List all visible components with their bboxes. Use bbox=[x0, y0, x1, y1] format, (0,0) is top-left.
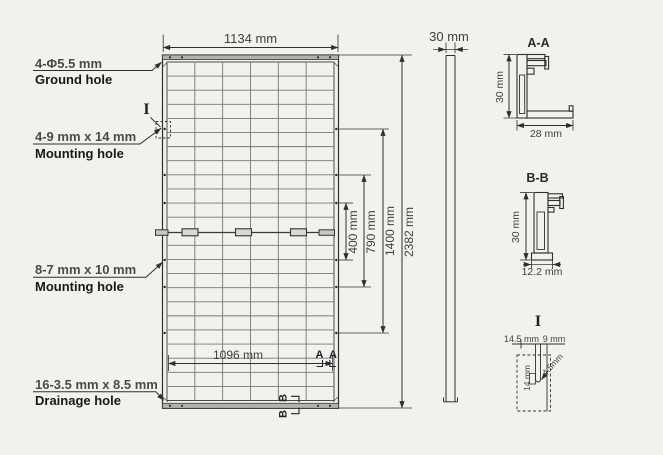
panel-top-frame-band bbox=[163, 55, 339, 60]
detail-i-offset-dim: 14.5 mm bbox=[504, 334, 537, 344]
callout-mounting-hole-2-name: Mounting hole bbox=[35, 280, 124, 295]
section-bb-height-dim: 30 mm bbox=[510, 210, 522, 242]
dim-panel-thickness: 30 mm bbox=[426, 30, 472, 45]
dim-1400: 1400 mm bbox=[384, 206, 398, 256]
junction-box bbox=[236, 229, 252, 236]
junction-box bbox=[291, 229, 307, 236]
edge-connector-left bbox=[156, 230, 169, 236]
section-b-letter-bottom: B bbox=[278, 410, 291, 418]
junction-box bbox=[182, 229, 198, 236]
section-b-bracket-top bbox=[291, 396, 299, 402]
section-aa-height-dim: 30 mm bbox=[493, 70, 505, 102]
callout-ground-hole-dim: 4-Φ5.5 mm bbox=[35, 57, 102, 72]
section-aa-width-dim: 28 mm bbox=[521, 128, 571, 140]
mounting-slot-shape bbox=[536, 344, 541, 382]
callout-drainage-hole-dim: 16-3.5 mm x 8.5 mm bbox=[35, 378, 158, 393]
technical-drawing-page: 4-Φ5.5 mm Ground hole 4-9 mm x 14 mm Mou… bbox=[0, 0, 663, 455]
callout-mounting-hole-2-dim: 8-7 mm x 10 mm bbox=[35, 263, 136, 278]
section-b-letter-top: B bbox=[278, 394, 291, 402]
dim-panel-width: 1134 mm bbox=[163, 32, 338, 47]
callout-drainage-hole-name: Drainage hole bbox=[35, 394, 121, 409]
callout-mounting-hole-1-name: Mounting hole bbox=[35, 147, 124, 162]
detail-i-slot-length-dim: 14 mm bbox=[523, 365, 533, 391]
detail-i-marker: I bbox=[139, 101, 154, 119]
dim-2382: 2382 mm bbox=[403, 206, 417, 256]
section-aa-profile bbox=[504, 55, 574, 131]
panel-bottom-frame-band bbox=[163, 403, 339, 408]
dim-790: 790 mm bbox=[365, 210, 379, 253]
section-bb-width-dim: 12.2 mm bbox=[517, 266, 567, 278]
junction-box-band bbox=[156, 229, 335, 236]
callout-ground-hole-name: Ground hole bbox=[35, 73, 112, 88]
edge-connector-right bbox=[319, 230, 335, 236]
section-bb-profile bbox=[520, 193, 563, 270]
dim-400: 400 mm bbox=[347, 210, 361, 253]
section-aa-title: A-A bbox=[515, 36, 562, 50]
dim-panel-inner-width: 1096 mm bbox=[206, 349, 270, 363]
side-view-profile bbox=[433, 43, 468, 402]
detail-i-region-box bbox=[156, 122, 171, 139]
section-bb-title: B-B bbox=[514, 171, 561, 185]
section-bb-dimensions bbox=[520, 193, 561, 270]
detail-i-title: I bbox=[529, 313, 547, 331]
detail-i-slot-width-dim: 9 mm bbox=[541, 334, 567, 344]
callout-mounting-hole-1-dim: 4-9 mm x 14 mm bbox=[35, 130, 136, 145]
section-a-letter-right: A bbox=[327, 349, 340, 362]
section-a-letter-left: A bbox=[313, 349, 326, 362]
